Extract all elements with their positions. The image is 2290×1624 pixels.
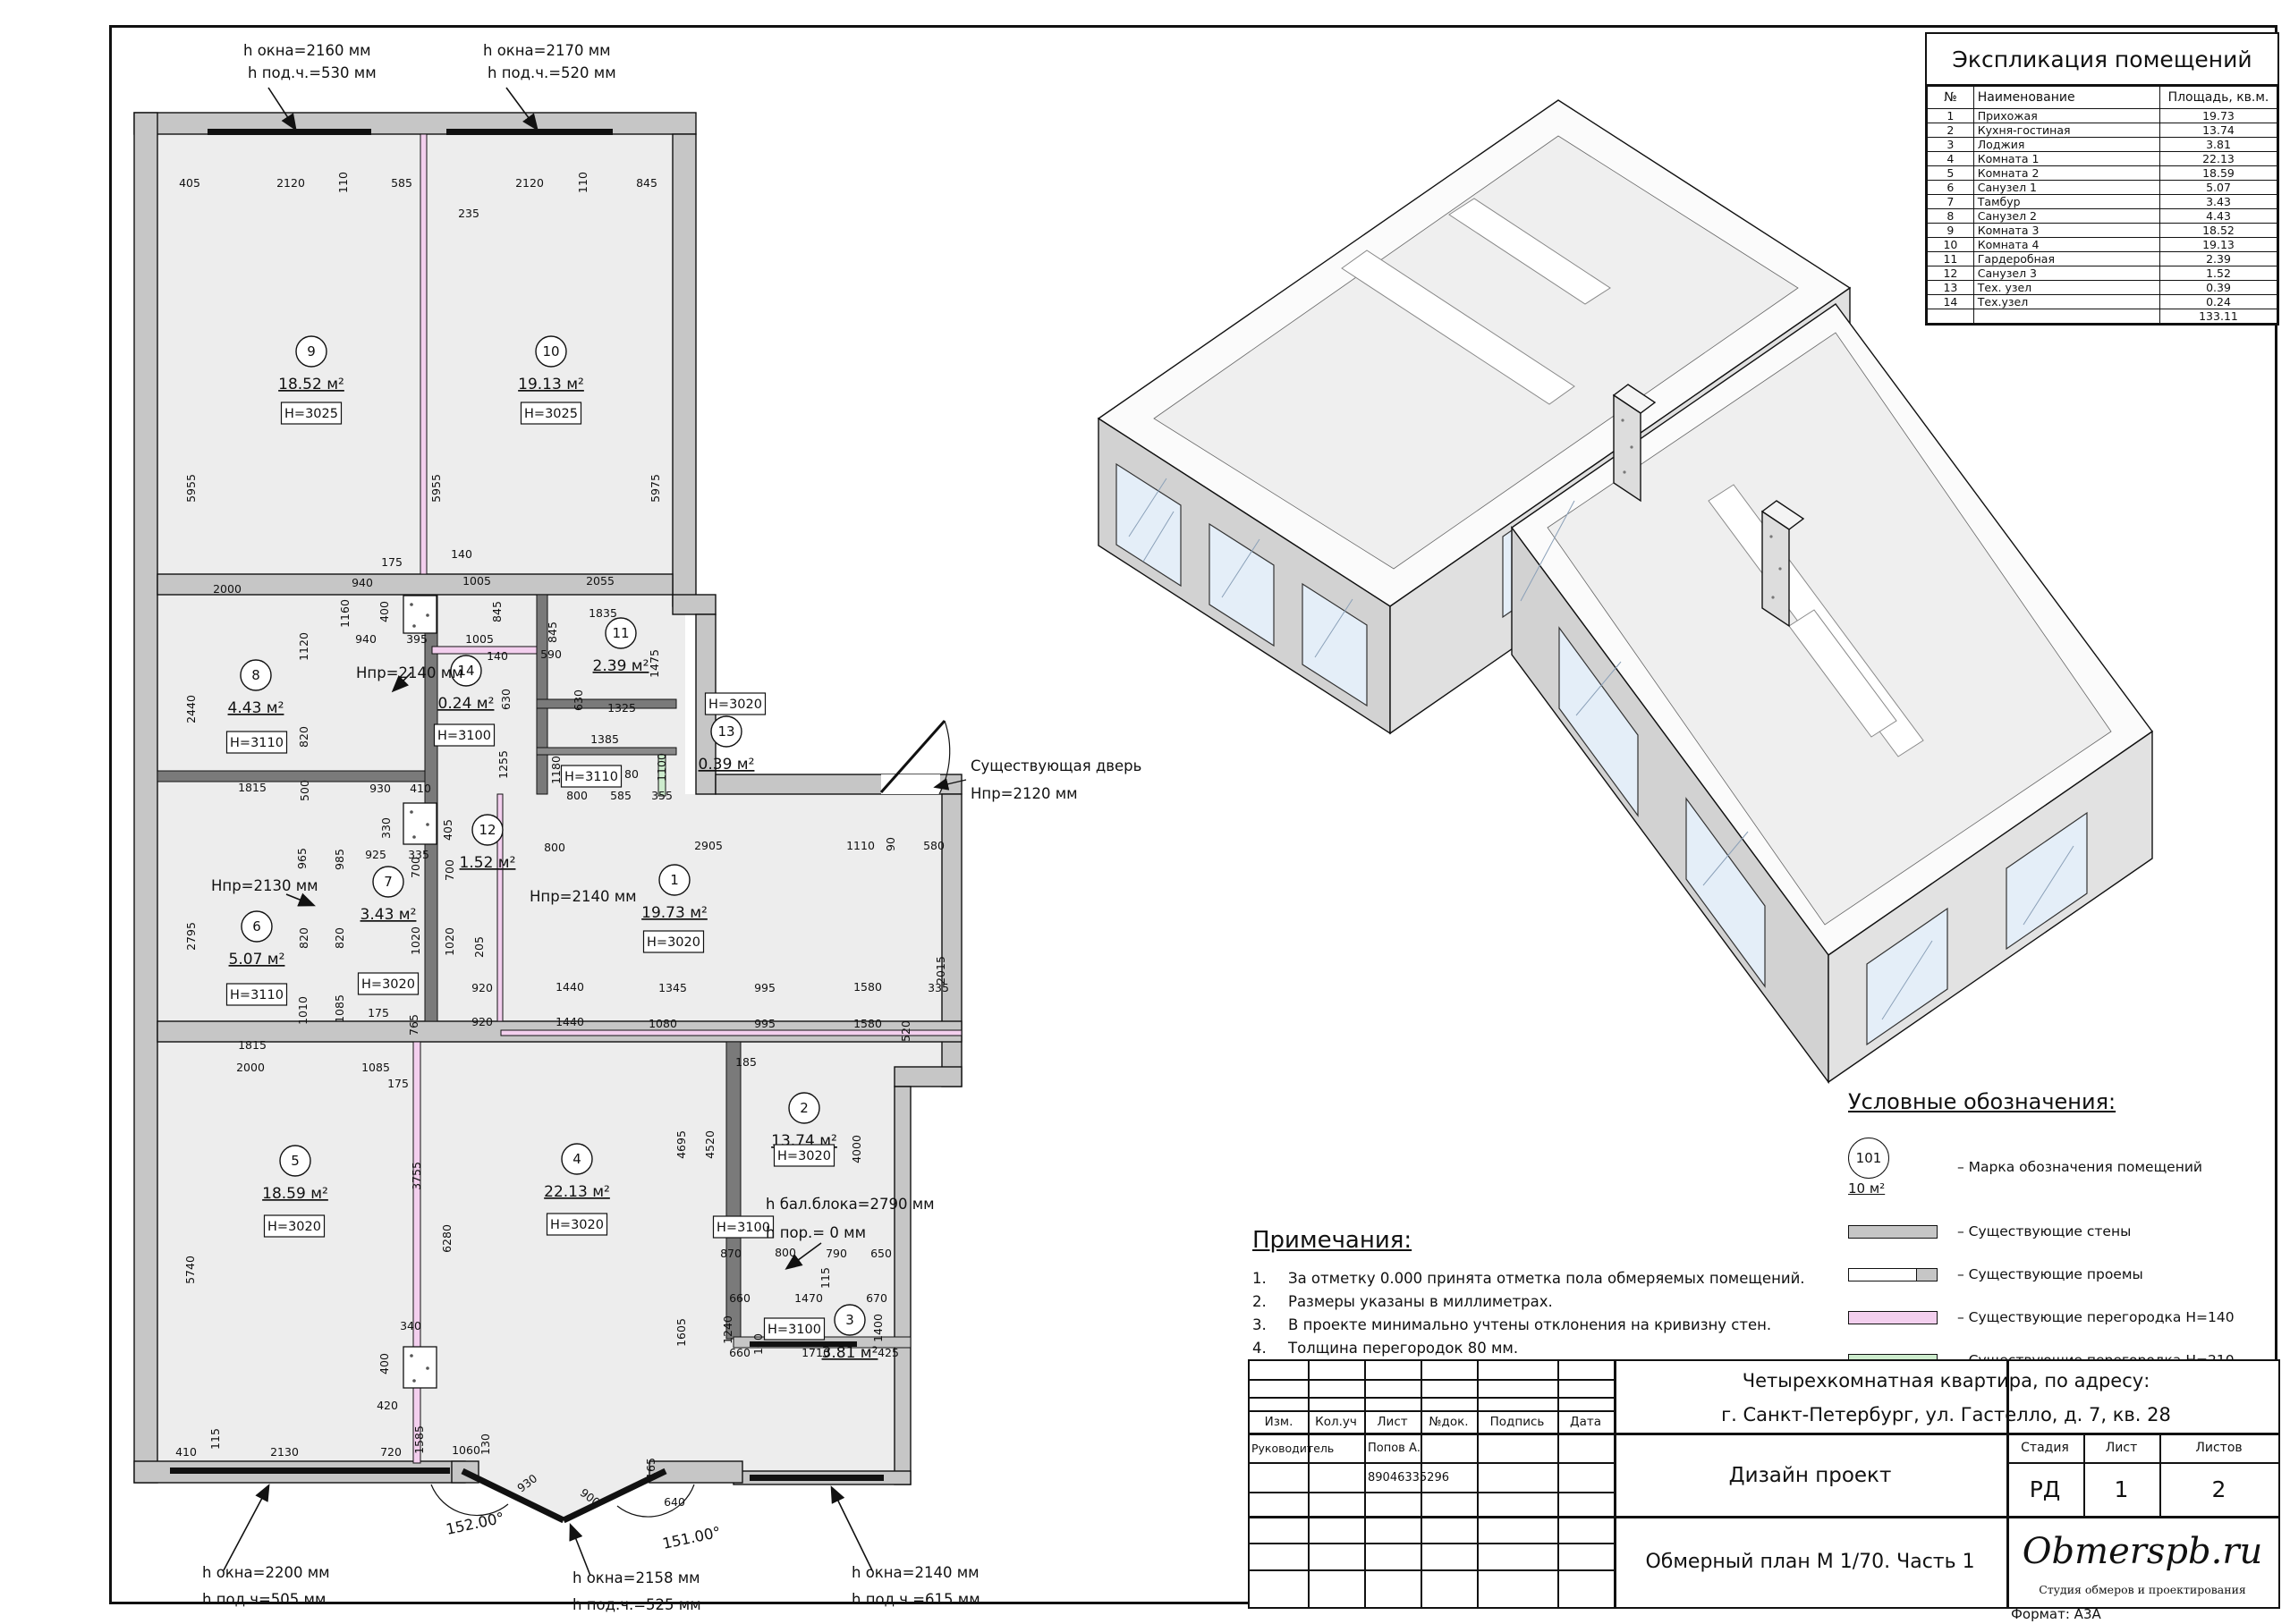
dim-label: 2015	[934, 956, 947, 985]
dim-label: 700	[443, 859, 456, 881]
dim-label: 590	[540, 647, 562, 661]
revision-col-header: Подпись	[1477, 1412, 1557, 1432]
dim-label: 925	[365, 848, 386, 861]
dim-label: 1100	[655, 753, 668, 782]
dim-label: 2120	[515, 176, 544, 190]
dim-label: 1815	[238, 781, 267, 794]
note-number: 3.	[1252, 1316, 1288, 1333]
role-name: Попов А.	[1368, 1436, 1475, 1459]
explication-cell: Комната 3	[1973, 224, 2159, 238]
room-mark-area: 10 м²	[1848, 1180, 1938, 1197]
dim-label: 355	[651, 789, 673, 802]
explication-row: 1Прихожая19.73	[1928, 109, 2277, 123]
room-mark-symbol: 10110 м²	[1848, 1138, 1938, 1197]
explication-cell: 5	[1928, 166, 1974, 181]
phone: 89046335296	[1368, 1466, 1475, 1489]
room-height-label: H=3100	[768, 1323, 821, 1337]
wall-swatch	[1848, 1225, 1938, 1239]
dim-label: 1835	[589, 606, 617, 620]
dim-label: 1440	[556, 1015, 584, 1028]
title-block: Четырехкомнатная квартира, по адресу: г.…	[1248, 1359, 2280, 1609]
room-height-label: H=3020	[550, 1218, 604, 1232]
explication-cell: 3	[1928, 138, 1974, 152]
dim-label: 920	[471, 1015, 493, 1028]
dim-label: 90	[884, 837, 897, 851]
sheets-label: Листов	[2159, 1436, 2278, 1459]
explication-row: 2Кухня-гостиная13.74	[1928, 123, 2277, 138]
room-area-label: 19.73 м²	[641, 904, 708, 922]
col-header-name: Наименование	[1973, 87, 2159, 109]
legend-item-label: – Существующие перегородка Н=140	[1957, 1309, 2235, 1325]
dim-label: 2000	[213, 582, 242, 596]
dim-label: 115	[818, 1267, 832, 1289]
dim-label: 995	[754, 1017, 776, 1030]
dim-label: 630	[572, 689, 585, 711]
dim-label: 175	[387, 1077, 409, 1090]
sheet-value: 1	[2083, 1467, 2159, 1511]
plan-annotation: Hпр=2130 мм	[211, 877, 318, 894]
explication-row: 12Санузел 31.52	[1928, 266, 2277, 281]
dim-label: 930	[369, 782, 391, 795]
dim-label: 1585	[412, 1425, 426, 1454]
dim-label: 1010	[296, 996, 310, 1025]
dim-label: 820	[333, 927, 346, 949]
dim-label: 995	[754, 981, 776, 994]
dim-label: 920	[471, 981, 493, 994]
dim-label: 1005	[465, 632, 494, 646]
dim-label: 1325	[607, 701, 636, 715]
explication-row: 10Комната 419.13	[1928, 238, 2277, 252]
dim-label: 1240	[721, 1315, 734, 1344]
explication-cell: Кухня-гостиная	[1973, 123, 2159, 138]
room-number: 10	[542, 343, 559, 359]
dim-label: 80	[624, 767, 639, 781]
explication-cell: 5.07	[2159, 181, 2277, 195]
format-label: Формат: А3А	[2011, 1606, 2101, 1622]
dim-label: 340	[400, 1319, 421, 1332]
dim-label: 820	[297, 726, 310, 748]
room-area-label: 2.39 м²	[593, 657, 649, 675]
revision-col-header: Кол.уч	[1308, 1412, 1364, 1432]
dim-label: 1475	[648, 649, 661, 678]
plan-annotation: Существующая дверь	[971, 757, 1141, 774]
dim-label: 420	[377, 1399, 398, 1412]
room-number: 12	[479, 822, 496, 838]
revision-col-header: Дата	[1557, 1412, 1614, 1432]
room-height-label: H=3110	[230, 736, 284, 750]
dim-label: 5740	[183, 1256, 197, 1284]
dim-label: 1080	[649, 1017, 677, 1030]
dim-label: 585	[391, 176, 412, 190]
note-item: 3.В проекте минимально учтены отклонения…	[1252, 1316, 1861, 1333]
revision-col-header: №док.	[1421, 1412, 1477, 1432]
explication-row: 5Комната 218.59	[1928, 166, 2277, 181]
explication-cell: Лоджия	[1973, 138, 2159, 152]
dim-label: 965	[295, 848, 309, 869]
notes-title: Примечания:	[1252, 1227, 1861, 1254]
note-text: За отметку 0.000 принята отметка пола об…	[1288, 1270, 1805, 1287]
room-number: 5	[291, 1153, 300, 1169]
dim-label: 5955	[184, 474, 198, 503]
legend-title: Условные обозначения:	[1848, 1089, 2277, 1114]
explication-cell: Тамбур	[1973, 195, 2159, 209]
room-height-label: H=3025	[524, 407, 578, 421]
explication-cell: 2.39	[2159, 252, 2277, 266]
col-header-area: Площадь, кв.м.	[2159, 87, 2277, 109]
dim-label: 2055	[586, 574, 615, 588]
legend-item: – Существующие перегородка Н=140	[1848, 1309, 2277, 1325]
explication-cell: Санузел 1	[1973, 181, 2159, 195]
dim-label: 670	[866, 1291, 887, 1305]
legend-swatch-bar	[1848, 1225, 1938, 1239]
explication-row: 14Тех.узел0.24	[1928, 295, 2277, 309]
explication-cell: 22.13	[2159, 152, 2277, 166]
plan-annotation: h окна=2158 мм	[572, 1569, 700, 1586]
plan-annotation: h бал.блока=2790 мм	[766, 1196, 935, 1213]
legend-item: 10110 м²– Марка обозначения помещений	[1848, 1138, 2277, 1197]
room-number: 2	[800, 1100, 809, 1116]
company-logo: Obmerspb.ru	[2006, 1527, 2278, 1576]
dim-label: 2000	[236, 1061, 265, 1074]
room-number: 6	[252, 918, 261, 935]
legend: Условные обозначения: 10110 м²– Марка об…	[1848, 1089, 2277, 1395]
room-height-label: H=3100	[437, 729, 491, 743]
explication-cell: 0.24	[2159, 295, 2277, 309]
room-area-label: 0.39 м²	[699, 756, 755, 774]
note-item: 4.Толщина перегородок 80 мм.	[1252, 1340, 1861, 1357]
explication-row: 3Лоджия3.81	[1928, 138, 2277, 152]
dim-label: 140	[451, 547, 472, 561]
project-type: Дизайн проект	[1614, 1451, 2006, 1500]
dim-label: 845	[546, 622, 559, 643]
explication-cell: Тех. узел	[1973, 281, 2159, 295]
room-height-label: H=3020	[777, 1149, 831, 1163]
legend-item-label: – Марка обозначения помещений	[1957, 1159, 2202, 1175]
room-area-label: 18.59 м²	[262, 1185, 328, 1203]
explication-cell: 14	[1928, 295, 1974, 309]
explication-cell: 12	[1928, 266, 1974, 281]
dim-label: 1580	[853, 1017, 882, 1030]
explication-cell: 0.39	[2159, 281, 2277, 295]
dim-label: 500	[298, 780, 311, 801]
dim-label: 2795	[184, 922, 198, 951]
drawing-title: Обмерный план М 1/70. Часть 1	[1614, 1535, 2006, 1587]
explication-cell: 3.81	[2159, 138, 2277, 152]
plan-annotation: Hпр=2120 мм	[971, 785, 1078, 802]
room-area-label: 3.43 м²	[360, 906, 417, 924]
dim-label: 2905	[694, 839, 723, 852]
room-area-label: 3.81 м²	[822, 1344, 878, 1362]
dim-label: 640	[664, 1495, 685, 1509]
explication-cell: 2	[1928, 123, 1974, 138]
plan-annotation: h окна=2140 мм	[852, 1564, 980, 1581]
entrance-door	[881, 721, 966, 794]
dim-label: 870	[720, 1247, 742, 1260]
explication-cell: 13	[1928, 281, 1974, 295]
dim-label: 4695	[674, 1130, 688, 1159]
explication-cell: 3.43	[2159, 195, 2277, 209]
explication-cell: 9	[1928, 224, 1974, 238]
dim-label: 405	[179, 176, 200, 190]
dim-label: 1160	[338, 599, 352, 628]
room-number: 11	[612, 625, 629, 641]
dim-label: 3755	[410, 1162, 423, 1190]
dim-label: 1180	[549, 756, 563, 784]
dim-label: 110	[576, 172, 589, 193]
stage-value: РД	[2006, 1467, 2083, 1511]
note-text: В проекте минимально учтены отклонения н…	[1288, 1316, 1771, 1333]
room-number: 13	[717, 723, 734, 740]
dim-label: 5955	[429, 474, 443, 503]
explication-cell: 10	[1928, 238, 1974, 252]
legend-items: 10110 м²– Марка обозначения помещений– С…	[1848, 1138, 2277, 1368]
plan-annotation: h под.ч.=615 мм	[852, 1591, 980, 1608]
room-area-label: 0.24 м²	[438, 695, 495, 713]
dim-label: 585	[610, 789, 632, 802]
dim-label: 660	[729, 1291, 751, 1305]
explication-cell: Комната 2	[1973, 166, 2159, 181]
explication-row: 11Гардеробная2.39	[1928, 252, 2277, 266]
dim-label: 2440	[184, 695, 198, 723]
dim-label: 425	[878, 1346, 899, 1359]
dim-label: 800	[544, 841, 565, 854]
explication-cell: 18.59	[2159, 166, 2277, 181]
dim-label: 410	[410, 782, 431, 795]
explication-cell: Санузел 2	[1973, 209, 2159, 224]
company-logo-subtitle: Студия обмеров и проектирования	[2006, 1579, 2278, 1599]
dim-label: 800	[775, 1246, 796, 1259]
note-item: 2.Размеры указаны в миллиметрах.	[1252, 1293, 1861, 1310]
explication-row: 6Санузел 15.07	[1928, 181, 2277, 195]
address-line2: г. Санкт-Петербург, ул. Гастелло, д. 7, …	[1614, 1399, 2278, 1431]
dim-label: 110	[336, 172, 350, 193]
plan-annotation: h окна=2200 мм	[202, 1564, 330, 1581]
plan-annotation: h окна=2160 мм	[243, 42, 371, 59]
note-number: 2.	[1252, 1293, 1288, 1310]
dim-label: 660	[729, 1346, 751, 1359]
dim-label: 765	[407, 1014, 420, 1036]
dim-label: 140	[487, 649, 508, 663]
explication-cell: Прихожая	[1973, 109, 2159, 123]
dim-label: 400	[377, 601, 391, 622]
explication-cell: 1	[1928, 109, 1974, 123]
wall-swatch	[1848, 1311, 1938, 1324]
note-number: 4.	[1252, 1340, 1288, 1357]
plan-annotation: h окна=2170 мм	[483, 42, 611, 59]
sheets-value: 2	[2159, 1467, 2278, 1511]
dim-label: 330	[379, 817, 393, 839]
plan-annotation: Hпр=2140 мм	[530, 888, 637, 905]
opening-cap	[1916, 1269, 1937, 1281]
explication-cell: Комната 4	[1973, 238, 2159, 252]
explication-cell: 4.43	[2159, 209, 2277, 224]
dim-label: 130	[479, 1434, 492, 1455]
note-number: 1.	[1252, 1270, 1288, 1287]
explication-cell: 13.74	[2159, 123, 2277, 138]
explication-cell: 6	[1928, 181, 1974, 195]
plan-annotation: h под.ч=505 мм	[202, 1591, 326, 1608]
explication-total: 133.11	[2159, 309, 2277, 324]
notes: Примечания: 1.За отметку 0.000 принята о…	[1252, 1227, 1861, 1363]
explication-cell: Гардеробная	[1973, 252, 2159, 266]
dim-label: 405	[441, 819, 454, 841]
legend-swatch-bar	[1848, 1311, 1938, 1324]
dim-label: 175	[368, 1006, 389, 1019]
explication-header: № Наименование Площадь, кв.м.	[1928, 87, 2277, 109]
opening-swatch	[1848, 1268, 1938, 1281]
dim-label: 410	[175, 1445, 197, 1459]
room-area-label: 22.13 м²	[544, 1183, 610, 1201]
floor-plan: 918.52 м²H=30251019.13 м²H=302584.43 м²H…	[134, 42, 1141, 1613]
plan-annotation: Hпр=2140 мм	[356, 664, 463, 681]
legend-swatch-bar	[1848, 1268, 1938, 1281]
explication-cell: 7	[1928, 195, 1974, 209]
dim-label: 4000	[850, 1135, 863, 1163]
dim-label: 1385	[590, 732, 619, 746]
room-number: 8	[251, 667, 260, 683]
dim-label: 205	[472, 936, 486, 958]
explication-cell: 19.13	[2159, 238, 2277, 252]
room-height-label: H=3020	[708, 698, 762, 712]
explication-cell: Комната 1	[1973, 152, 2159, 166]
dim-label: 1345	[658, 981, 687, 994]
room-area-label: 5.07 м²	[229, 951, 285, 968]
dim-label: 1440	[556, 980, 584, 994]
room-height-label: H=3100	[717, 1221, 770, 1235]
room-number: 3	[845, 1312, 854, 1328]
plan-annotation: h под.ч.=520 мм	[488, 64, 616, 81]
explication-title: Экспликация помещений	[1927, 34, 2277, 86]
explication-row: 4Комната 122.13	[1928, 152, 2277, 166]
dim-label: 985	[333, 849, 346, 870]
room-area-label: 19.13 м²	[518, 376, 584, 393]
dim-label: 160	[751, 1333, 765, 1355]
dim-label: 1255	[496, 750, 510, 779]
room-mark-circle: 101	[1848, 1138, 1889, 1179]
notes-items: 1.За отметку 0.000 принята отметка пола …	[1252, 1270, 1861, 1357]
dim-label: 6280	[440, 1224, 454, 1253]
dim-label: 845	[636, 176, 657, 190]
dim-label: 115	[208, 1428, 222, 1450]
explication-row: 9Комната 318.52	[1928, 224, 2277, 238]
room-height-label: H=3020	[267, 1220, 321, 1234]
col-header-num: №	[1928, 87, 1974, 109]
legend-item: – Существующие стены	[1848, 1223, 2277, 1239]
explication-cell: Санузел 3	[1973, 266, 2159, 281]
note-item: 1.За отметку 0.000 принята отметка пола …	[1252, 1270, 1861, 1287]
sheet-label: Лист	[2083, 1436, 2159, 1459]
room-height-label: H=3020	[361, 977, 415, 992]
dim-label: 1400	[871, 1314, 885, 1342]
dim-label: 175	[381, 555, 403, 569]
room-height-label: H=3110	[564, 770, 618, 784]
dim-label: 1110	[846, 839, 875, 852]
note-text: Толщина перегородок 80 мм.	[1288, 1340, 1518, 1357]
explication-row: 8Санузел 24.43	[1928, 209, 2277, 224]
dim-label: 1120	[297, 632, 310, 661]
legend-item-label: – Существующие проемы	[1957, 1266, 2143, 1282]
room-area-label: 4.43 м²	[228, 699, 284, 717]
note-text: Размеры указаны в миллиметрах.	[1288, 1293, 1553, 1310]
dim-label: 1580	[853, 980, 882, 994]
dim-label: 1815	[238, 1038, 267, 1052]
dim-label: 1020	[409, 926, 422, 955]
room-height-label: H=3025	[284, 407, 338, 421]
explication-cell: 18.52	[2159, 224, 2277, 238]
explication-cell: 1.52	[2159, 266, 2277, 281]
explication-cell: 8	[1928, 209, 1974, 224]
revision-col-header: Лист	[1364, 1412, 1421, 1432]
plan-annotation: h пор.= 0 мм	[766, 1224, 866, 1241]
dim-label: 820	[297, 927, 310, 949]
dim-label: 185	[735, 1055, 757, 1069]
explication-cell: 4	[1928, 152, 1974, 166]
room-area-label: 18.52 м²	[278, 376, 344, 393]
dim-label: 580	[923, 839, 945, 852]
role-label: Руководитель	[1251, 1436, 1362, 1459]
dim-label: 700	[409, 857, 422, 878]
room-number: 9	[307, 343, 316, 359]
dim-label: 5975	[649, 474, 662, 503]
dim-label: 845	[490, 601, 504, 622]
explication-body: 1Прихожая19.732Кухня-гостиная13.743Лоджи…	[1928, 109, 2277, 309]
explication-row: 13Тех. узел0.39	[1928, 281, 2277, 295]
dim-label: 4520	[703, 1130, 717, 1159]
dim-label: 790	[826, 1247, 847, 1260]
dim-label: 630	[499, 689, 513, 710]
explication-total-row: 133.11	[1928, 309, 2277, 324]
plan-annotation: h под.ч.=525 мм	[572, 1596, 701, 1613]
plan-annotation: h под.ч.=530 мм	[248, 64, 377, 81]
dim-label: 800	[566, 789, 588, 802]
dim-label: 2120	[276, 176, 305, 190]
explication-row: 7Тамбур3.43	[1928, 195, 2277, 209]
dim-label: 1605	[674, 1318, 688, 1347]
room-number: 7	[384, 874, 393, 890]
address-line1: Четырехкомнатная квартира, по адресу:	[1614, 1365, 2278, 1397]
room-number: 1	[670, 872, 679, 888]
dim-label: 1470	[794, 1291, 823, 1305]
explication-table: Экспликация помещений № Наименование Пло…	[1925, 32, 2279, 326]
dim-label: 235	[458, 207, 479, 220]
legend-item-label: – Существующие стены	[1957, 1223, 2131, 1239]
dim-label: 1710	[801, 1346, 830, 1359]
dim-label: 1020	[443, 927, 456, 956]
legend-item: – Существующие проемы	[1848, 1266, 2277, 1282]
plan-annotation: 152.00°	[445, 1510, 505, 1538]
dim-label: 395	[406, 632, 428, 646]
dim-label: 650	[870, 1247, 892, 1260]
dim-label: 165	[644, 1458, 657, 1479]
dim-label: 1005	[462, 574, 491, 588]
room-height-label: H=3110	[230, 988, 284, 1002]
dim-label: 720	[380, 1445, 402, 1459]
room-height-label: H=3020	[647, 935, 700, 950]
dim-label: 1085	[361, 1061, 390, 1074]
dim-label: 400	[377, 1353, 391, 1374]
dim-label: 1085	[333, 994, 346, 1023]
sheet: 918.52 м²H=30251019.13 м²H=302584.43 м²H…	[0, 0, 2290, 1624]
dim-label: 940	[352, 576, 373, 589]
dim-label: 940	[355, 632, 377, 646]
room-area-label: 1.52 м²	[460, 854, 516, 872]
dim-label: 520	[899, 1020, 912, 1042]
plan-annotation: 151.00°	[661, 1524, 722, 1552]
stage-label: Стадия	[2006, 1436, 2083, 1459]
room-number: 4	[572, 1151, 581, 1167]
explication-cell: 11	[1928, 252, 1974, 266]
explication-cell: 19.73	[2159, 109, 2277, 123]
